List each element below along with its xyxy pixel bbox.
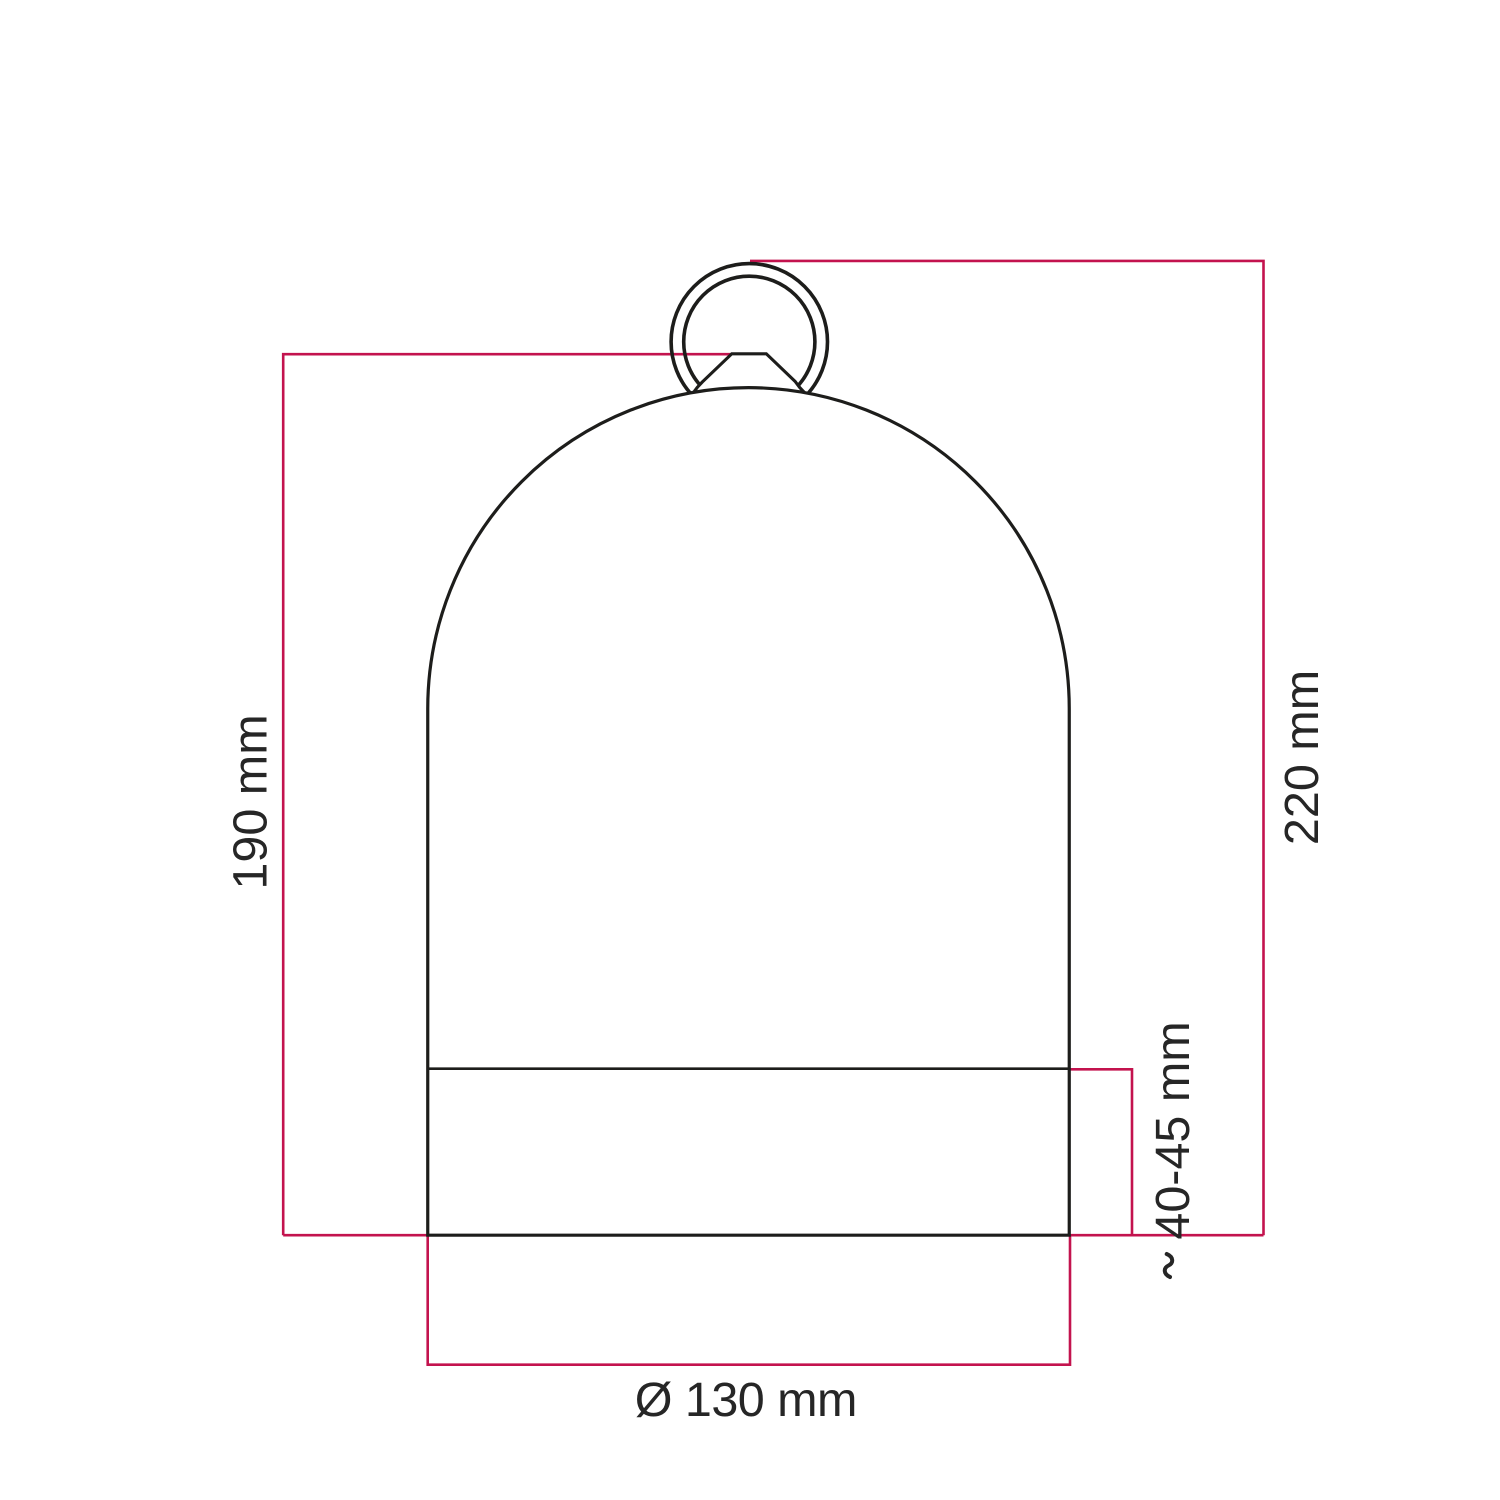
svg-text:40-45 mm: 40-45 mm [1146, 1021, 1200, 1239]
svg-text:190 mm: 190 mm [224, 714, 278, 889]
svg-text:220 mm: 220 mm [1275, 670, 1329, 845]
svg-text:Ø 130 mm: Ø 130 mm [635, 1373, 857, 1427]
